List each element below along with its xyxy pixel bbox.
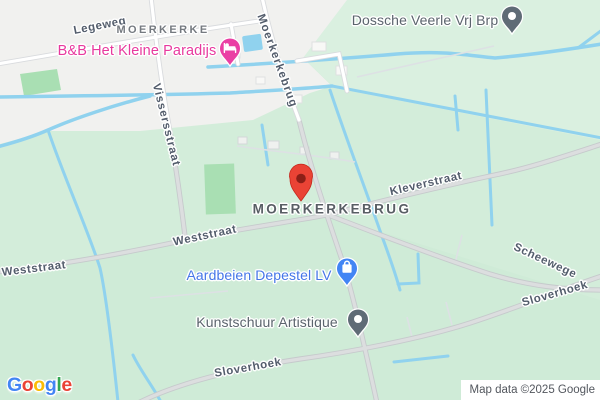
logo-letter: e (61, 374, 71, 396)
circle-pin-icon[interactable] (494, 0, 530, 37)
red-location-marker[interactable] (281, 153, 321, 205)
attribution-text: Map data ©2025 Google (470, 384, 595, 396)
poi-label-kunstschuur-artistique[interactable]: Kunstschuur Artistique (196, 314, 338, 330)
poi-label-aardbeien-depestel[interactable]: Aardbeien Depestel LV (186, 267, 331, 283)
poi-label-bnb-het-kleine-paradijs[interactable]: B&B Het Kleine Paradijs (58, 43, 217, 59)
dot-icon (508, 12, 516, 20)
map-canvas[interactable]: Legeweg Moerkerkebrug Vissersstraat Klev… (0, 0, 600, 400)
logo-letter: G (7, 374, 22, 396)
bed-pin-icon[interactable] (212, 25, 248, 69)
poi-label-dossche-veerle[interactable]: Dossche Veerle Vrj Brp (352, 12, 498, 28)
locality-label-moerkerkebrug: MOERKERKEBRUG (253, 202, 412, 217)
circle-pin-icon[interactable] (340, 296, 376, 340)
map-attribution: Map data ©2025 Google (461, 380, 600, 400)
google-logo[interactable]: Google (7, 374, 72, 397)
logo-letter: o (33, 374, 45, 396)
town-label-moerkerke: MOERKERKE (116, 24, 209, 36)
shopping-bag-pin-icon[interactable] (329, 245, 365, 289)
logo-letter: o (22, 374, 34, 396)
dot-icon (354, 315, 362, 323)
logo-letter: g (45, 374, 57, 396)
